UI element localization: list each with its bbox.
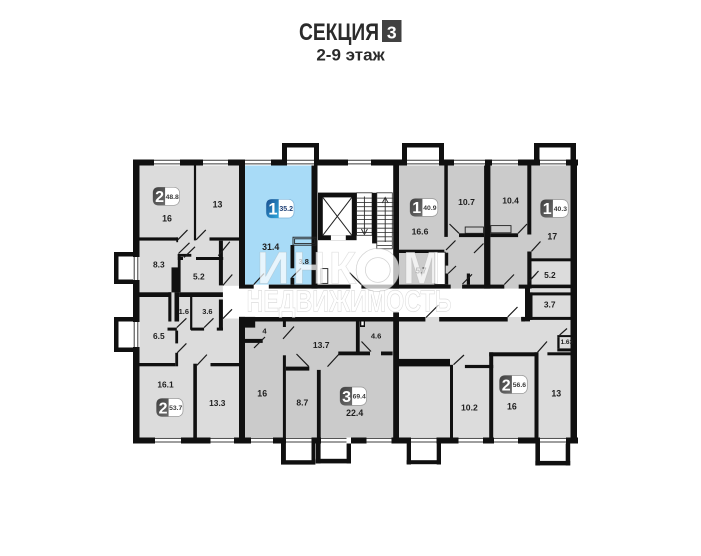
svg-text:56.6: 56.6 bbox=[513, 382, 526, 389]
svg-text:4.6: 4.6 bbox=[371, 332, 382, 341]
svg-text:6.5: 6.5 bbox=[153, 331, 165, 341]
svg-text:35.2: 35.2 bbox=[279, 206, 293, 213]
svg-text:НЕДВИЖИМОСТЬ: НЕДВИЖИМОСТЬ bbox=[247, 284, 452, 319]
svg-text:13: 13 bbox=[551, 389, 561, 399]
svg-text:3: 3 bbox=[387, 23, 397, 43]
svg-text:16.6: 16.6 bbox=[412, 227, 429, 237]
svg-text:5.2: 5.2 bbox=[193, 272, 205, 282]
svg-text:69.4: 69.4 bbox=[353, 394, 366, 401]
svg-text:3.6: 3.6 bbox=[202, 307, 212, 316]
svg-text:СЕКЦИЯ: СЕКЦИЯ bbox=[299, 19, 379, 46]
svg-text:40.3: 40.3 bbox=[554, 206, 567, 213]
svg-text:3.7: 3.7 bbox=[544, 300, 556, 310]
svg-text:1.6: 1.6 bbox=[179, 307, 189, 316]
svg-text:1: 1 bbox=[268, 200, 277, 218]
svg-text:16: 16 bbox=[507, 401, 517, 411]
svg-text:2: 2 bbox=[159, 400, 168, 417]
svg-text:1.63: 1.63 bbox=[561, 339, 574, 346]
svg-text:17: 17 bbox=[547, 232, 557, 242]
svg-text:16: 16 bbox=[162, 214, 172, 224]
svg-text:48.8: 48.8 bbox=[166, 194, 179, 201]
svg-text:8.3: 8.3 bbox=[153, 260, 165, 270]
svg-text:22.4: 22.4 bbox=[346, 408, 363, 418]
svg-text:53.7: 53.7 bbox=[169, 405, 182, 412]
svg-text:3: 3 bbox=[342, 389, 351, 406]
svg-text:1: 1 bbox=[412, 200, 421, 217]
svg-text:16.1: 16.1 bbox=[157, 380, 174, 390]
svg-text:2: 2 bbox=[155, 189, 164, 206]
svg-text:10.4: 10.4 bbox=[502, 196, 519, 206]
svg-text:2: 2 bbox=[502, 377, 511, 394]
svg-text:13: 13 bbox=[213, 200, 223, 210]
svg-text:16: 16 bbox=[257, 388, 267, 398]
svg-text:13.7: 13.7 bbox=[313, 340, 330, 350]
svg-text:10.2: 10.2 bbox=[461, 402, 478, 412]
svg-text:10.7: 10.7 bbox=[458, 197, 475, 207]
svg-text:8.7: 8.7 bbox=[296, 397, 308, 407]
svg-text:1: 1 bbox=[543, 201, 552, 218]
svg-text:5.2: 5.2 bbox=[544, 270, 556, 280]
svg-text:13.3: 13.3 bbox=[209, 398, 226, 408]
svg-text:40.9: 40.9 bbox=[423, 205, 436, 212]
svg-text:2-9 этаж: 2-9 этаж bbox=[316, 46, 385, 65]
